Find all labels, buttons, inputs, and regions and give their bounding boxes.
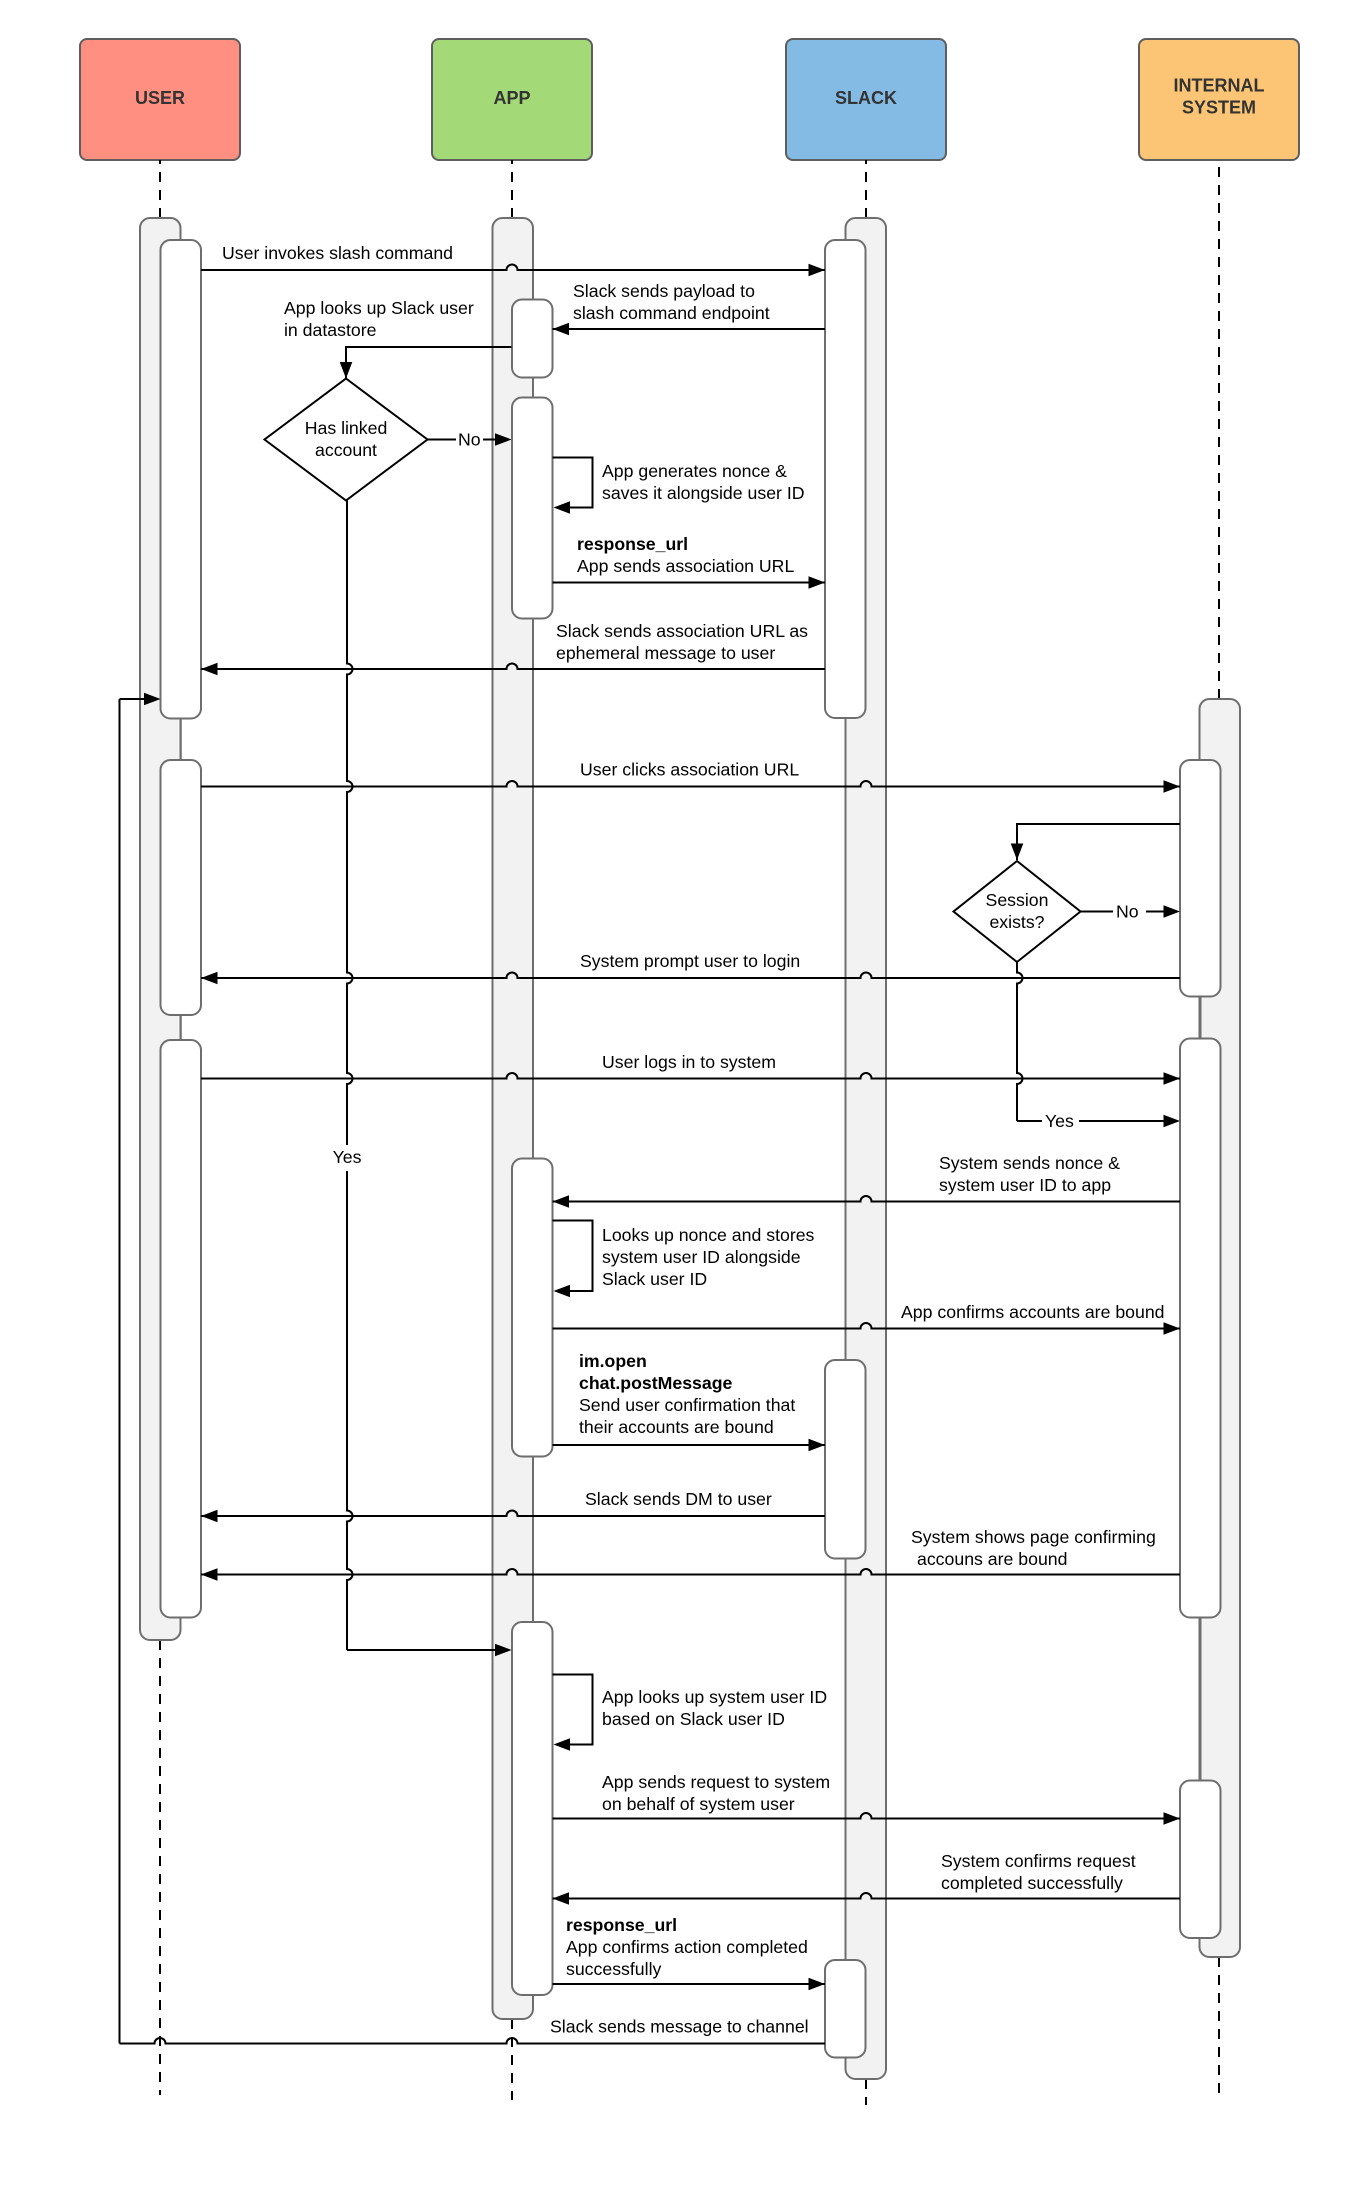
svg-text:App sends request to system: App sends request to system bbox=[602, 1772, 830, 1792]
svg-text:User invokes slash command: User invokes slash command bbox=[222, 243, 453, 263]
svg-text:INTERNAL: INTERNAL bbox=[1174, 76, 1265, 96]
svg-text:App confirms action completed: App confirms action completed bbox=[566, 1937, 808, 1957]
svg-text:completed successfully: completed successfully bbox=[941, 1873, 1123, 1893]
svg-text:Yes: Yes bbox=[1045, 1111, 1074, 1131]
svg-text:response_url: response_url bbox=[577, 534, 688, 554]
svg-text:ephemeral message to user: ephemeral message to user bbox=[556, 643, 775, 663]
svg-text:App looks up system user ID: App looks up system user ID bbox=[602, 1687, 827, 1707]
svg-text:exists?: exists? bbox=[989, 912, 1044, 932]
svg-text:Has linked: Has linked bbox=[305, 418, 388, 438]
svg-text:Send user confirmation that: Send user confirmation that bbox=[579, 1395, 795, 1415]
svg-text:System sends nonce &: System sends nonce & bbox=[939, 1153, 1120, 1173]
svg-text:Yes: Yes bbox=[333, 1147, 362, 1167]
svg-text:Looks up nonce and stores: Looks up nonce and stores bbox=[602, 1225, 815, 1245]
svg-text:Slack sends message to channel: Slack sends message to channel bbox=[550, 2017, 809, 2037]
svg-text:im.open: im.open bbox=[579, 1351, 647, 1371]
svg-text:Slack sends payload to: Slack sends payload to bbox=[573, 281, 755, 301]
svg-text:App confirms accounts are boun: App confirms accounts are bound bbox=[901, 1302, 1165, 1322]
svg-text:User clicks association URL: User clicks association URL bbox=[580, 760, 799, 780]
svg-text:App generates nonce &: App generates nonce & bbox=[602, 461, 787, 481]
svg-text:No: No bbox=[1116, 902, 1139, 922]
svg-text:Slack sends DM to user: Slack sends DM to user bbox=[585, 1489, 772, 1509]
svg-text:App looks up Slack user: App looks up Slack user bbox=[284, 298, 474, 318]
svg-text:System shows page confirming: System shows page confirming bbox=[911, 1527, 1156, 1547]
svg-text:based on Slack user ID: based on Slack user ID bbox=[602, 1709, 785, 1729]
svg-text:account: account bbox=[315, 440, 377, 460]
svg-text:Slack sends association URL as: Slack sends association URL as bbox=[556, 621, 808, 641]
svg-text:system user ID to app: system user ID to app bbox=[939, 1175, 1111, 1195]
svg-text:on behalf of system user: on behalf of system user bbox=[602, 1794, 795, 1814]
svg-text:chat.postMessage: chat.postMessage bbox=[579, 1373, 733, 1393]
svg-text:SLACK: SLACK bbox=[835, 88, 897, 108]
svg-text:accouns are bound: accouns are bound bbox=[917, 1549, 1067, 1569]
svg-text:APP: APP bbox=[493, 88, 530, 108]
svg-text:saves it alongside user ID: saves it alongside user ID bbox=[602, 483, 805, 503]
svg-text:No: No bbox=[458, 430, 481, 450]
svg-text:system user ID alongside: system user ID alongside bbox=[602, 1247, 801, 1267]
svg-text:SYSTEM: SYSTEM bbox=[1182, 98, 1256, 118]
svg-text:Slack user ID: Slack user ID bbox=[602, 1269, 707, 1289]
svg-text:System confirms request: System confirms request bbox=[941, 1851, 1136, 1871]
svg-text:USER: USER bbox=[135, 88, 185, 108]
svg-text:successfully: successfully bbox=[566, 1959, 662, 1979]
svg-text:Session: Session bbox=[986, 890, 1049, 910]
svg-text:slash command endpoint: slash command endpoint bbox=[573, 303, 770, 323]
svg-text:App sends association URL: App sends association URL bbox=[577, 556, 794, 576]
svg-text:response_url: response_url bbox=[566, 1915, 677, 1935]
svg-text:in datastore: in datastore bbox=[284, 320, 377, 340]
svg-text:their accounts are bound: their accounts are bound bbox=[579, 1417, 774, 1437]
svg-text:System prompt user to login: System prompt user to login bbox=[580, 951, 800, 971]
svg-text:User logs in to system: User logs in to system bbox=[602, 1052, 776, 1072]
